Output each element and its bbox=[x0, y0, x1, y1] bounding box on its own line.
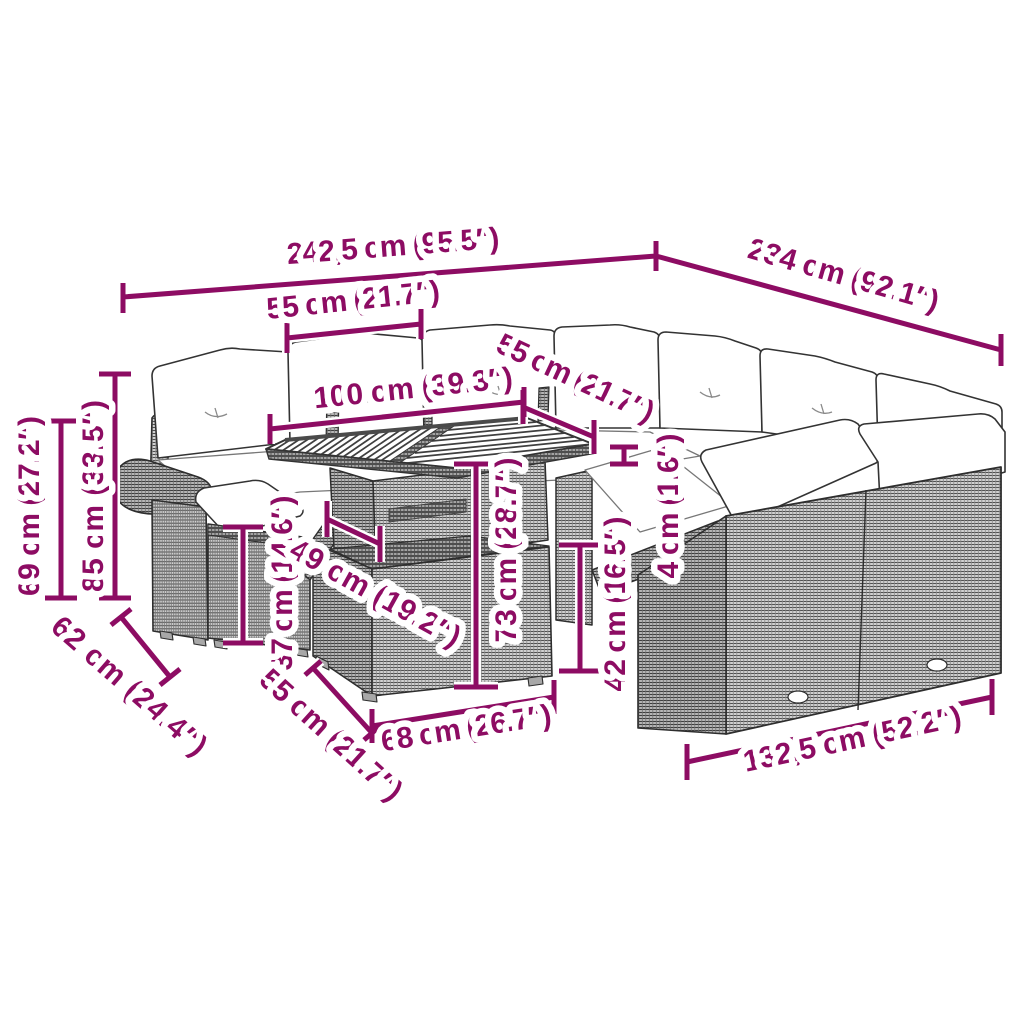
svg-text:73 cm (28.7″): 73 cm (28.7″) bbox=[490, 458, 523, 643]
svg-text:4 cm (1.6″): 4 cm (1.6″) bbox=[652, 434, 685, 579]
svg-text:42 cm (16.5″): 42 cm (16.5″) bbox=[599, 517, 632, 692]
svg-text:85 cm (33.5″): 85 cm (33.5″) bbox=[77, 400, 110, 592]
svg-text:37 cm (14.6″): 37 cm (14.6″) bbox=[266, 496, 299, 671]
svg-text:69 cm (27.2″): 69 cm (27.2″) bbox=[13, 416, 46, 596]
